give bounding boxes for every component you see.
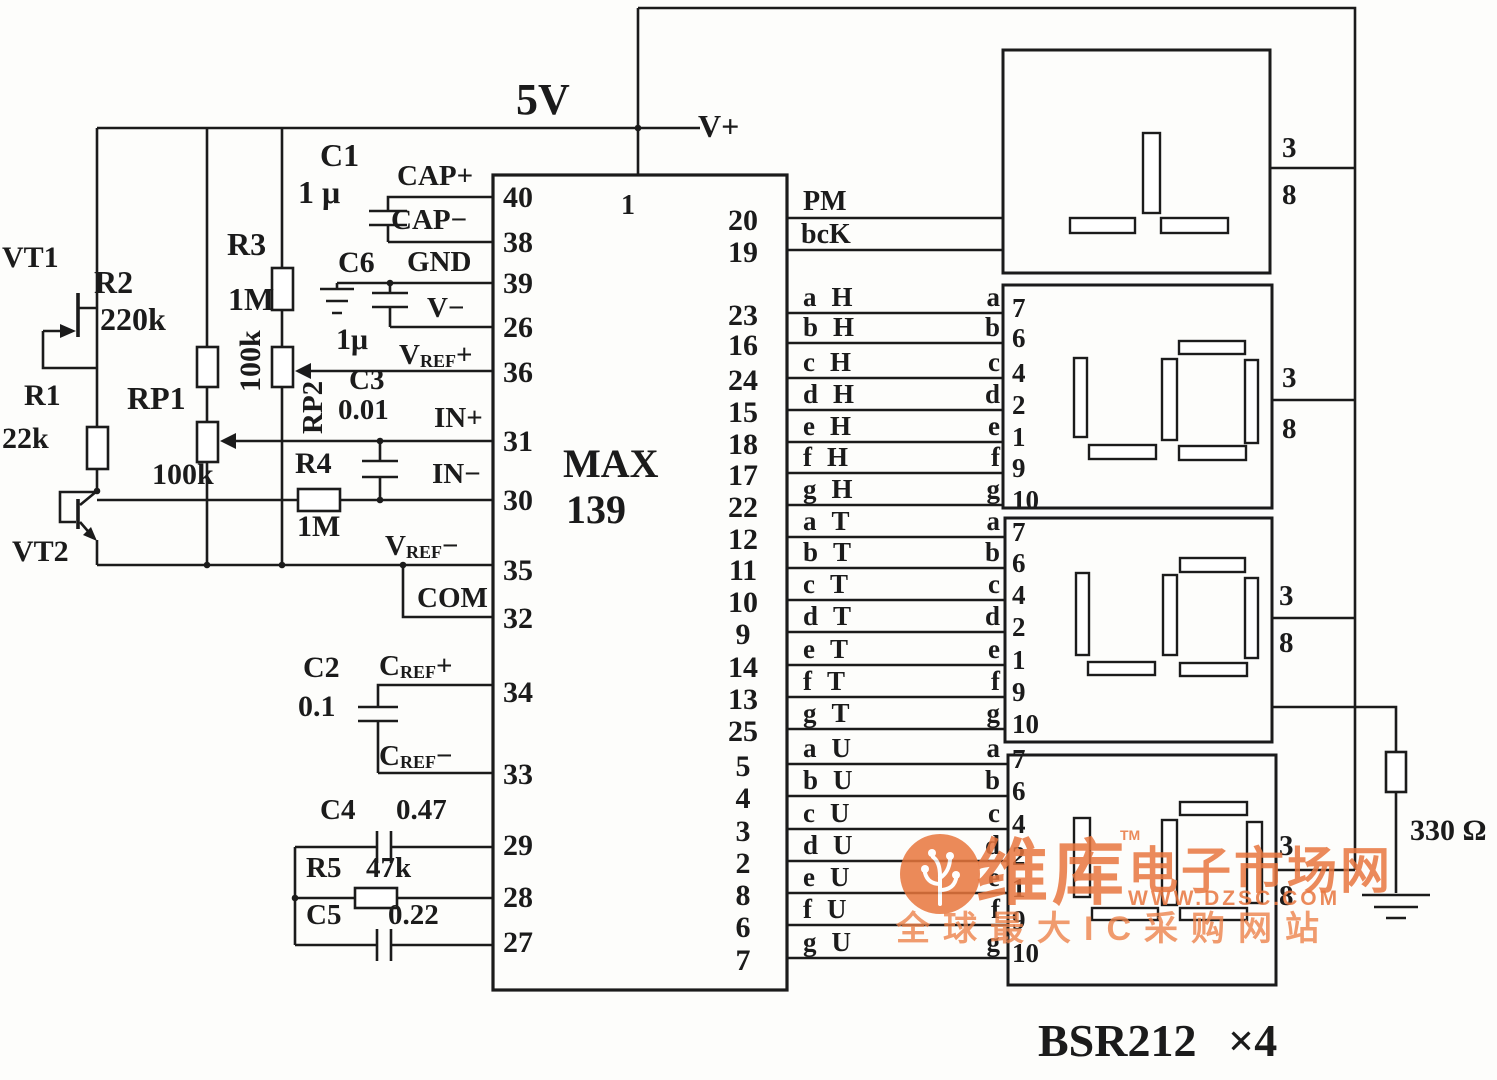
ic-pin-number-30: 30 <box>503 486 553 516</box>
ic-pin-number-20: 20 <box>718 206 768 236</box>
display2-pin: 10 <box>1012 487 1058 514</box>
display4-pin: 6 <box>1012 778 1058 805</box>
pin-label-vminus: V− <box>427 294 464 323</box>
segment-wire-label: fU <box>803 896 847 923</box>
pin-label-pm: PM <box>803 188 847 216</box>
display-segment-letter: f <box>958 444 1000 471</box>
segment-wire-label: fH <box>803 444 848 471</box>
pin-label-cap-plus: CAP+ <box>397 162 473 191</box>
ic-pin-number-38: 38 <box>503 228 553 258</box>
display4-pin: 7 <box>1012 746 1058 773</box>
c6-name: C6 <box>338 248 375 278</box>
rp1-value: 100k <box>152 460 214 490</box>
supply-5v-label: 5V <box>516 78 570 122</box>
ic-pin-number-26: 26 <box>503 313 553 343</box>
ic-pin-number: 17 <box>718 461 768 491</box>
display2-common-3: 3 <box>1282 364 1297 393</box>
r4-value: 1M <box>297 512 340 542</box>
ic-pin-number-19: 19 <box>718 238 768 268</box>
ic-pin-number-35: 35 <box>503 556 553 586</box>
display3-pin: 10 <box>1012 711 1058 738</box>
display-segment-letter: d <box>958 381 1000 408</box>
segment-wire-label: cT <box>803 571 848 598</box>
c2-value: 0.1 <box>298 692 336 722</box>
ic-pin-number-28: 28 <box>503 883 553 913</box>
display4-pin: 1 <box>1012 875 1058 902</box>
display-segment-letter: a <box>958 284 1000 311</box>
rp1-name: RP1 <box>127 382 186 414</box>
c1-name: C1 <box>320 139 359 171</box>
ic-pin1-number: 1 <box>621 192 635 220</box>
display-segment-letter: f <box>958 896 1000 923</box>
display-segment-letter: e <box>958 864 1000 891</box>
ic-pin-number: 11 <box>718 556 768 586</box>
pin-label-bck: bcK <box>801 221 851 249</box>
r1-name: R1 <box>24 381 61 411</box>
segment-wire-label: gT <box>803 700 850 727</box>
segment-wire-label: aT <box>803 508 850 535</box>
segment-wire-label: aH <box>803 284 853 311</box>
display2-pin: 9 <box>1012 455 1058 482</box>
pin-label-cref-minus: CREF− <box>379 741 452 771</box>
r5-name: R5 <box>306 854 341 883</box>
display2-common-8: 8 <box>1282 415 1297 444</box>
display-segment-letter: f <box>958 668 1000 695</box>
ic-part-name-line2: 139 <box>566 490 626 530</box>
display3-pin: 7 <box>1012 519 1058 546</box>
segment-wire-label: eU <box>803 864 849 891</box>
display4-common-8: 8 <box>1279 882 1294 911</box>
segment-wire-label: cU <box>803 800 849 827</box>
ic-pin-number-40: 40 <box>503 183 553 213</box>
ic-pin-number: 16 <box>718 331 768 361</box>
c1-value: 1 μ <box>298 176 340 208</box>
ic-pin-number-33: 33 <box>503 760 553 790</box>
display2-pin: 4 <box>1012 360 1058 387</box>
display3-common-8: 8 <box>1279 629 1294 658</box>
segment-wire-label: eH <box>803 413 851 440</box>
c4-name: C4 <box>320 796 355 825</box>
display1-common-3: 3 <box>1282 134 1297 163</box>
display-segment-letter: g <box>958 476 1000 503</box>
segment-wire-label: gH <box>803 476 853 503</box>
display-segment-letter: c <box>958 349 1000 376</box>
display2-pin: 7 <box>1012 295 1058 322</box>
c3-value: 0.01 <box>338 396 389 425</box>
ic-pin-number: 25 <box>718 717 768 747</box>
r4-name: R4 <box>295 449 332 479</box>
c4-value: 0.47 <box>396 796 447 825</box>
segment-wire-label: fT <box>803 668 845 695</box>
resistor-330ohm <box>1386 752 1406 792</box>
display-segment-letter: d <box>958 603 1000 630</box>
ic-pin-number-31: 31 <box>503 427 553 457</box>
ic-pin-number-36: 36 <box>503 358 553 388</box>
display-segment-letter: b <box>958 314 1000 341</box>
display-segment-letter: d <box>958 832 1000 859</box>
pin-label-in-minus: IN− <box>432 460 481 489</box>
ic-pin-number: 10 <box>718 588 768 618</box>
display2-pin: 1 <box>1012 424 1058 451</box>
ic-pin-number: 23 <box>718 301 768 331</box>
display-quantity: ×4 <box>1228 1018 1277 1064</box>
vplus-label: V+ <box>698 110 739 142</box>
display4-pin: 4 <box>1012 811 1058 838</box>
display3-pin: 6 <box>1012 550 1058 577</box>
display1-common-8: 8 <box>1282 181 1297 210</box>
segment-wire-label: eT <box>803 636 848 663</box>
segment-wire-label: dU <box>803 832 853 859</box>
resistor-r4 <box>298 489 340 511</box>
vt1-gate-arrow <box>60 324 76 338</box>
pin-label-cap-minus: CAP− <box>391 206 467 235</box>
display3-pin: 1 <box>1012 647 1058 674</box>
pin-label-vref-minus: VREF− <box>385 531 458 561</box>
segment-wire-label: gU <box>803 929 851 956</box>
display-segments <box>1070 133 1262 920</box>
ic-pin-number: 6 <box>718 913 768 943</box>
ic-pin-number-32: 32 <box>503 604 553 634</box>
display-segment-letter: g <box>958 700 1000 727</box>
pin-label-gnd: GND <box>407 248 471 277</box>
c6-value: 1μ <box>336 325 368 355</box>
display-segment-letter: c <box>958 800 1000 827</box>
ic-pin-number: 12 <box>718 525 768 555</box>
ic-pin-number: 5 <box>718 752 768 782</box>
resistor-r1 <box>87 427 108 469</box>
pin-label-in-plus: IN+ <box>434 404 483 433</box>
pin-label-vref-plus: VREF+ <box>399 340 472 370</box>
display3-pin: 2 <box>1012 614 1058 641</box>
display-segment-letter: g <box>958 929 1000 956</box>
rp2-name: RP2 <box>299 381 328 434</box>
display-segment-letter: a <box>958 735 1000 762</box>
c5-name: C5 <box>306 901 341 930</box>
segment-wire-label: dT <box>803 603 851 630</box>
ic-pin-number: 8 <box>718 881 768 911</box>
ic-pin-number: 18 <box>718 430 768 460</box>
ic-pin-number: 9 <box>718 620 768 650</box>
display-segment-letter: e <box>958 636 1000 663</box>
display4-pin: 9 <box>1012 907 1058 934</box>
display3-pin: 9 <box>1012 679 1058 706</box>
ic-pin-number: 14 <box>718 653 768 683</box>
r3-value: 1M <box>228 283 274 315</box>
display3-common-3: 3 <box>1279 582 1294 611</box>
r5-value: 47k <box>366 854 411 883</box>
segment-wire-label: bH <box>803 314 854 341</box>
ic-pin-number: 22 <box>718 493 768 523</box>
schematic-max139-bsr212: 5V V+ 330 Ω VT1 VT2 R1 22k R2 220k R3 1M… <box>0 0 1497 1080</box>
display-part-number: BSR212 <box>1038 1018 1196 1064</box>
display2-pin: 2 <box>1012 392 1058 419</box>
r1-value: 22k <box>2 424 49 454</box>
segment-wire-label: bT <box>803 539 851 566</box>
rp1-wiper-arrow <box>220 433 236 449</box>
pin-label-cref-plus: CREF+ <box>379 651 452 681</box>
display-segment-letter: b <box>958 539 1000 566</box>
ic-pin-number-39: 39 <box>503 269 553 299</box>
pin-label-com: COM <box>417 584 488 613</box>
ic-pin-number-29: 29 <box>503 831 553 861</box>
c2-name: C2 <box>303 653 340 683</box>
junction-dots <box>94 125 642 902</box>
r2-value: 220k <box>100 303 166 335</box>
ic-pin-number: 13 <box>718 685 768 715</box>
display-segment-letter: a <box>958 508 1000 535</box>
r2-name: R2 <box>94 266 133 298</box>
ic-pin-number: 3 <box>718 817 768 847</box>
potentiometer-rp1 <box>197 422 218 462</box>
ic-part-name-line1: MAX <box>563 444 659 484</box>
segment-wire-label: aU <box>803 735 851 762</box>
ic-pin-number: 15 <box>718 398 768 428</box>
ic-pin-number: 24 <box>718 366 768 396</box>
c5-value: 0.22 <box>388 901 439 930</box>
ic-pin-number-34: 34 <box>503 678 553 708</box>
display-segment-letter: e <box>958 413 1000 440</box>
display4-pin: 2 <box>1012 843 1058 870</box>
segment-wire-label: cH <box>803 349 851 376</box>
display-1-outline <box>1003 50 1270 273</box>
segment-wire-label: dH <box>803 381 854 408</box>
vt1-label: VT1 <box>2 243 59 273</box>
vt2-label: VT2 <box>12 537 69 567</box>
ic-pin-number-27: 27 <box>503 928 553 958</box>
c3-name: C3 <box>349 366 384 395</box>
resistor-r3 <box>272 268 293 310</box>
display3-pin: 4 <box>1012 582 1058 609</box>
potentiometer-rp2 <box>272 347 293 387</box>
display4-pin: 10 <box>1012 940 1058 967</box>
display-segment-letter: b <box>958 767 1000 794</box>
rp2-wiper-arrow <box>295 363 311 379</box>
segment-wire-label: bU <box>803 767 853 794</box>
r3-name: R3 <box>227 228 266 260</box>
rp2-value: 100k <box>236 330 266 392</box>
display4-common-3: 3 <box>1279 832 1294 861</box>
ic-pin-number: 2 <box>718 849 768 879</box>
display-segment-letter: c <box>958 571 1000 598</box>
resistor-r2 <box>197 347 218 387</box>
display2-pin: 6 <box>1012 325 1058 352</box>
resistor-330-value: 330 Ω <box>1410 816 1487 846</box>
ic-pin-number: 7 <box>718 946 768 976</box>
ic-pin-number: 4 <box>718 784 768 814</box>
